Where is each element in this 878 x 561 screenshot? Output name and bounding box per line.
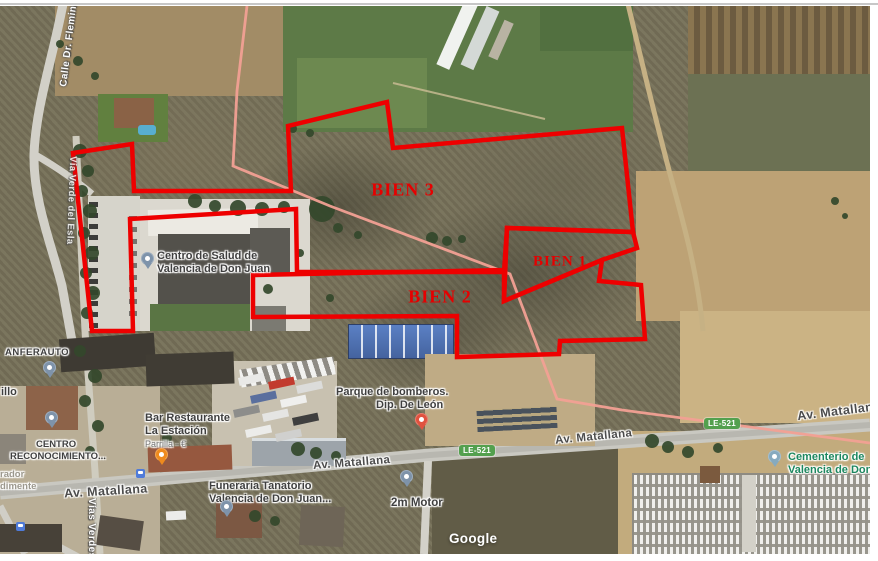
tree-blob	[645, 434, 659, 448]
parcel-bien2-boundary	[253, 260, 645, 357]
parcel-label-bien3: BIEN 3	[371, 180, 435, 201]
parked-truck	[233, 405, 260, 418]
route-badge-le521: LE-521	[459, 445, 495, 456]
poi-label-line: Centro de Salud de	[157, 250, 270, 263]
street-label-via-verde-lower: Vías Verdes	[86, 498, 97, 554]
parked-truck	[238, 373, 265, 386]
tree-blob	[209, 200, 221, 212]
tree-blob	[82, 165, 94, 177]
poi-label-reconocimiento-2[interactable]: RECONOCIMIENTO...	[10, 451, 106, 462]
poi-label-bomberos-2[interactable]: Dip. De León	[376, 399, 443, 411]
tree-blob	[662, 441, 674, 453]
parcel-bien3-boundary	[73, 102, 633, 331]
bus-stop-icon[interactable]	[16, 522, 25, 531]
tree-blob	[310, 447, 322, 459]
poi-label-motor[interactable]: 2m Motor	[391, 497, 443, 509]
reconocimiento-pin[interactable]	[45, 411, 58, 424]
parked-truck	[292, 413, 319, 426]
tree-blob	[74, 345, 86, 357]
tree-blob	[831, 197, 839, 205]
motor-pin[interactable]	[400, 470, 413, 483]
poi-label-bomberos-1[interactable]: Parque de bomberos.	[336, 386, 448, 398]
tree-blob	[91, 72, 99, 80]
parked-truck	[268, 377, 295, 390]
poi-label-reconocimiento-1[interactable]: CENTRO	[36, 439, 76, 450]
poi-label-rador: rador	[0, 469, 24, 480]
tree-blob	[263, 284, 273, 294]
cementerio-pin[interactable]	[768, 450, 781, 463]
page-border-line	[0, 3, 878, 5]
screenshot-canvas: BIEN 3 BIEN 1 BIEN 2 Calle Dr. Fleming V…	[0, 0, 878, 561]
parked-trucks	[233, 373, 323, 442]
poi-label-line: Bar Restaurante	[145, 412, 230, 425]
tree-blob	[188, 194, 202, 208]
poi-label-line: Funeraria Tanatorio	[209, 480, 331, 493]
poi-label-centro-salud[interactable]: Centro de Salud de Valencia de Don Juan	[157, 250, 270, 276]
poi-label-bar[interactable]: Bar Restaurante La Estación Parrilla · €	[145, 412, 230, 451]
bomberos-pin[interactable]	[415, 413, 428, 426]
tree-blob	[291, 442, 305, 456]
greenway-route-line	[233, 6, 870, 443]
bus-stop-icon[interactable]	[136, 469, 145, 478]
tree-blob	[270, 516, 280, 526]
route-badge-le521: LE-521	[704, 418, 740, 429]
poi-label-dimente: dimente	[0, 481, 36, 492]
tree-blob	[326, 294, 334, 302]
google-watermark: Google	[449, 531, 497, 546]
funeraria-pin[interactable]	[220, 500, 233, 513]
tree-blob	[249, 510, 261, 522]
tree-blob	[85, 246, 99, 260]
poi-label-illo: illo	[1, 386, 17, 398]
tree-blobs	[56, 40, 848, 526]
tree-blob	[73, 56, 83, 66]
poi-label-line: La Estación	[145, 425, 230, 438]
tree-blob	[333, 223, 343, 233]
tree-blob	[713, 443, 723, 453]
anferauto-pin[interactable]	[43, 361, 56, 374]
poi-label-line: Cementerio de	[788, 451, 870, 464]
poi-label-line: Valencia de Don .	[788, 464, 870, 477]
tree-blob	[682, 446, 694, 458]
satellite-map[interactable]: BIEN 3 BIEN 1 BIEN 2 Calle Dr. Fleming V…	[0, 6, 870, 554]
tree-blob	[92, 420, 104, 432]
parcel-label-bien1: BIEN 1	[533, 254, 587, 271]
tree-blob	[442, 236, 452, 246]
parked-truck	[280, 395, 307, 408]
parked-truck	[262, 409, 289, 422]
annotation-layer	[0, 6, 870, 554]
parked-truck	[245, 425, 272, 438]
tree-blob	[79, 395, 91, 407]
tree-blob	[88, 369, 102, 383]
tree-blob	[458, 235, 466, 243]
tree-blob	[842, 213, 848, 219]
health-center-pin[interactable]	[141, 252, 154, 265]
tree-blob	[83, 204, 97, 218]
tree-blob	[306, 129, 314, 137]
parcel-label-bien2: BIEN 2	[408, 287, 472, 308]
tree-blob	[354, 231, 362, 239]
poi-label-anferauto[interactable]: ANFERAUTO	[5, 347, 69, 358]
parked-truck	[296, 381, 323, 394]
restaurant-pin[interactable]	[155, 448, 168, 461]
poi-label-line: Valencia de Don Juan	[157, 263, 270, 276]
parked-truck	[250, 391, 277, 404]
poi-label-cementerio[interactable]: Cementerio de Valencia de Don .	[788, 451, 870, 477]
parked-truck	[275, 429, 302, 442]
